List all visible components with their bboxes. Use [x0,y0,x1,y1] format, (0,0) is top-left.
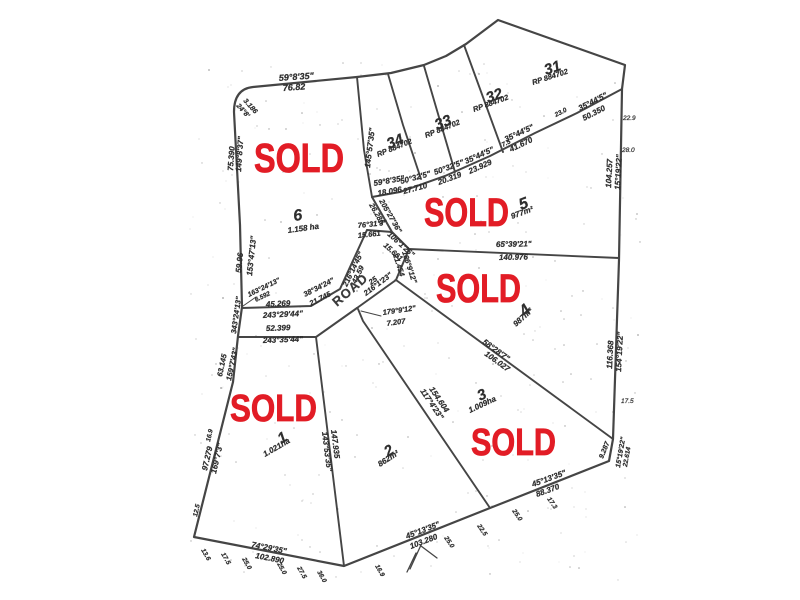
svg-text:243°35'44": 243°35'44" [262,335,304,345]
svg-text:140.976: 140.976 [499,252,529,262]
svg-text:28.0: 28.0 [621,147,635,154]
svg-text:SOLD: SOLD [436,267,521,311]
svg-text:65°39'21": 65°39'21" [496,239,532,249]
svg-text:116.368: 116.368 [605,340,615,369]
svg-text:52.399: 52.399 [266,323,291,333]
svg-text:SOLD: SOLD [471,422,556,464]
svg-text:15°19'22": 15°19'22" [613,154,624,190]
svg-text:SOLD: SOLD [230,388,317,430]
svg-text:104.257: 104.257 [604,158,615,188]
svg-text:45.269: 45.269 [265,299,291,309]
svg-text:75.390: 75.390 [226,146,237,172]
svg-text:76.82: 76.82 [282,81,305,93]
svg-text:SOLD: SOLD [424,191,509,235]
svg-text:22.9: 22.9 [622,115,636,122]
svg-text:17.5: 17.5 [621,398,634,405]
svg-text:SOLD: SOLD [254,135,344,181]
